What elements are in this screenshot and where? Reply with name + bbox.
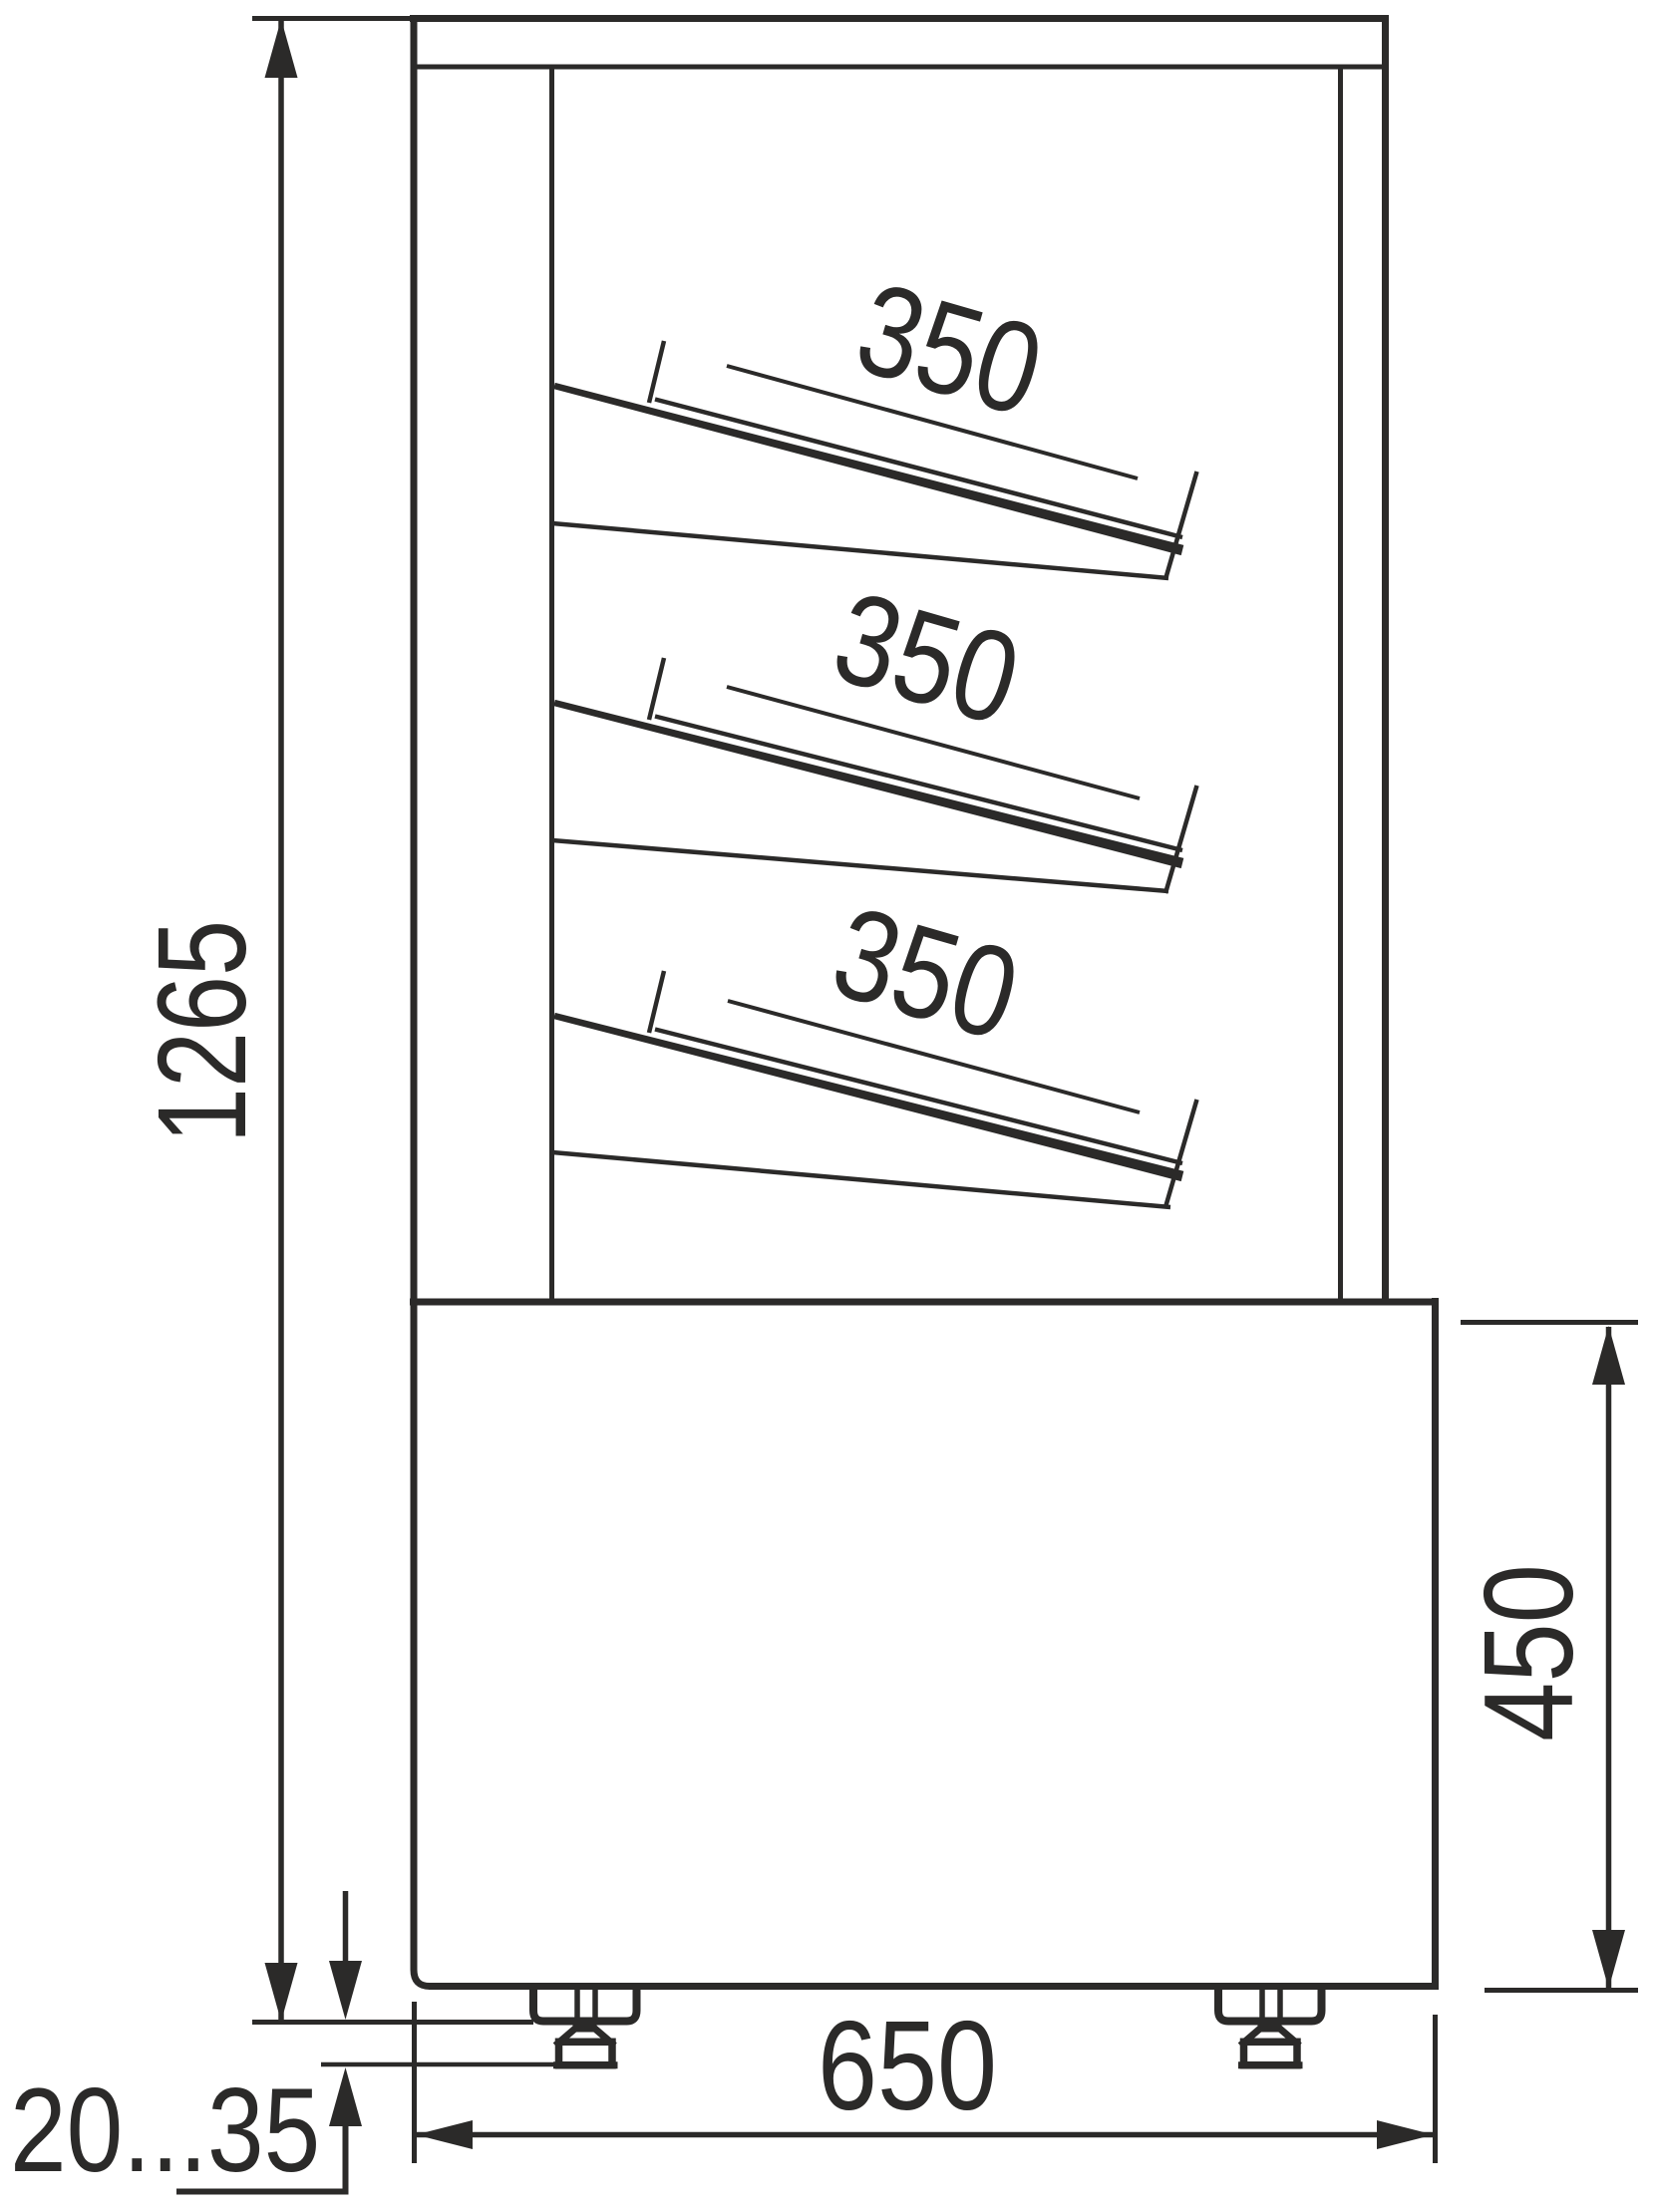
svg-text:650: 650 [818,1995,997,2136]
svg-text:20...35: 20...35 [10,2062,320,2197]
svg-text:1265: 1265 [133,920,272,1143]
svg-text:450: 450 [1458,1564,1599,1741]
